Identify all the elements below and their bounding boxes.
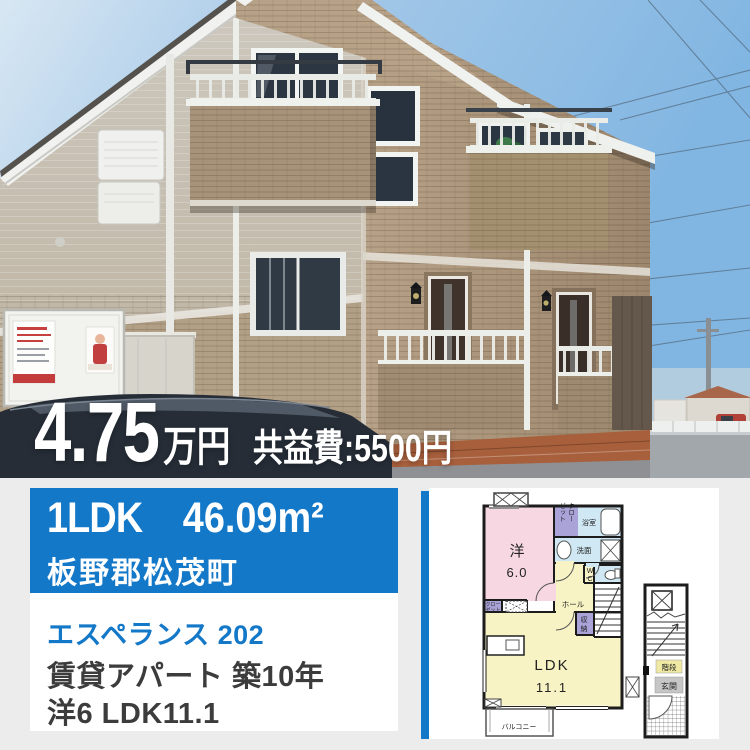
floorplan-stairwell	[643, 585, 687, 737]
bath-label: 浴室	[582, 518, 596, 527]
banner-layout-area: 1LDK 46.09m²	[47, 494, 324, 543]
floorplan-panel[interactable]: 洋 6.0 ゼット クロー 浴室 洗面 W C ホール 収 納 クロー ゼット …	[429, 488, 719, 739]
stairs-label: 階段	[662, 662, 677, 672]
common-fee: 共益費:5500円	[253, 417, 452, 472]
floorplan-balcony	[486, 709, 553, 736]
wash-label: 洗面	[577, 545, 592, 555]
first-floor-window-left	[250, 252, 346, 336]
area-label: 46.09m²	[183, 494, 324, 543]
layout-label: 1LDK	[47, 494, 142, 543]
property-type-age: 賃貸アパート 築10年	[47, 653, 324, 695]
entrance-label: 玄関	[661, 681, 677, 691]
poster-1	[13, 321, 55, 383]
poster-2	[86, 327, 114, 373]
kitchen-sink	[506, 640, 519, 650]
property-banner: 1LDK 46.09m² 板野郡松茂町	[30, 488, 398, 593]
western-room-size: 6.0	[506, 565, 527, 580]
price-unit: 万円	[163, 413, 230, 474]
floorplan-drawing: 洋 6.0 ゼット クロー 浴室 洗面 W C ホール 収 納 クロー ゼット …	[429, 488, 719, 739]
wc-line2: C	[587, 576, 592, 583]
ldk-size: 11.1	[536, 680, 568, 695]
storage-line2: 納	[581, 624, 588, 633]
western-room-label: 洋	[509, 543, 524, 560]
air-conditioner-unit	[98, 182, 160, 224]
closet2-line2: ゼット	[485, 607, 500, 614]
location-label: 板野郡松茂町	[47, 548, 239, 592]
ldk-label: LDK	[534, 657, 569, 674]
sink	[557, 541, 571, 559]
property-listing-card[interactable]: 4.75 万円 共益費:5500円 1LDK 46.09m² 板野郡松茂町 エス…	[0, 0, 750, 750]
balcony-label: バルコニー	[502, 723, 537, 731]
room-composition: 洋6 LDK11.1	[47, 690, 220, 732]
property-details: エスペランス 202 賃貸アパート 築10年 洋6 LDK11.1	[30, 593, 398, 731]
property-name: エスペランス 202	[47, 613, 264, 652]
property-info-card[interactable]: 1LDK 46.09m² 板野郡松茂町 エスペランス 202 賃貸アパート 築1…	[30, 488, 398, 731]
air-conditioner-unit	[98, 130, 164, 180]
storage-line1: 収	[581, 616, 588, 624]
laundry-pole	[186, 60, 382, 64]
bathtub	[601, 509, 620, 535]
property-photo[interactable]: 4.75 万円 共益費:5500円	[0, 0, 750, 478]
accent-divider-bar	[421, 491, 429, 739]
wc-line1: W	[587, 568, 594, 575]
laundry-pole	[466, 108, 612, 112]
price-overlay: 4.75 万円 共益費:5500円	[34, 390, 452, 474]
price-value: 4.75	[34, 390, 158, 474]
hall-label: ホール	[562, 600, 585, 609]
